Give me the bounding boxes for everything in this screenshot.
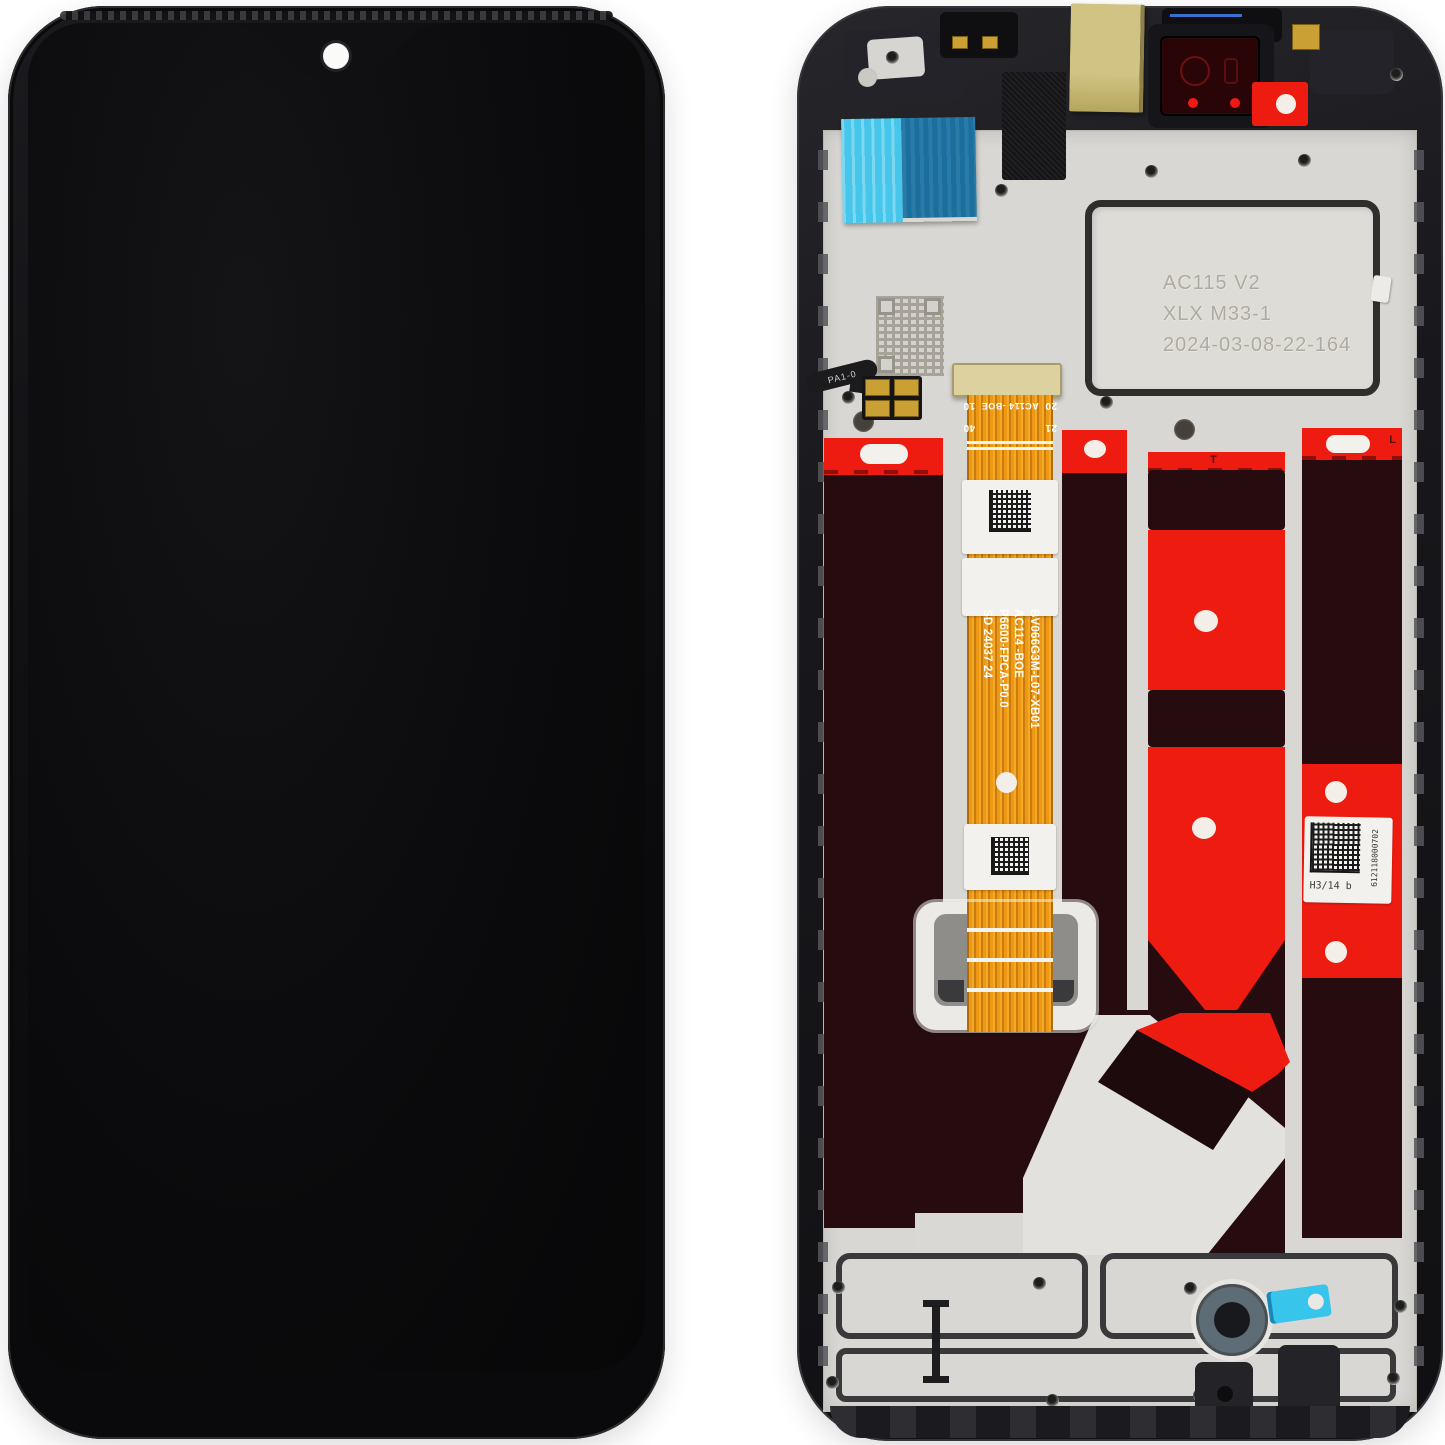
strip3-mark: T (1210, 454, 1217, 466)
red-adhesive-tab (1252, 82, 1308, 126)
flex-label-blank (962, 558, 1058, 616)
screw-hole (832, 1281, 845, 1294)
strip4-slot (1326, 435, 1370, 453)
serial-label-number: 612118000702 (1370, 829, 1380, 887)
strip3-hole-2 (1192, 817, 1216, 839)
pad-corner (938, 980, 964, 1002)
blue-pull-tape (841, 117, 977, 223)
flex-mark: 10 (963, 401, 975, 412)
top-left-connector-recess (940, 12, 1018, 58)
screw-hole (1298, 154, 1311, 167)
qr-finder (878, 356, 895, 373)
flex-line-2: AC114 -BOE (1010, 609, 1026, 779)
etched-qr-code (876, 296, 944, 376)
tab-hole (1307, 1293, 1325, 1311)
screw-hole (842, 391, 855, 404)
phone-front-view (8, 6, 665, 1439)
flex-white-stripe (967, 928, 1053, 932)
etched-line-2: XLX M33-1 (1163, 299, 1351, 330)
strip3-red-mid (1148, 530, 1285, 690)
bottom-gasket-channel-left (836, 1253, 1088, 1339)
gold-pad (894, 379, 919, 396)
blue-tape-dark-part (901, 117, 977, 218)
serial-label: H3/14 b 612118000702 (1303, 816, 1392, 904)
red-dot (1230, 98, 1240, 108)
strip3-black-block-2 (1148, 690, 1285, 747)
strip2-hole (1084, 440, 1106, 458)
black-fabric-patch (1002, 72, 1066, 180)
earpiece-mesh-strip (60, 11, 613, 20)
strip3-black-block-1 (1148, 470, 1285, 530)
flex-ribbon-through-pad (967, 902, 1053, 1032)
gold-pad (865, 379, 890, 396)
screw-hole (995, 184, 1008, 197)
flex-line-4: SD 24037 24 (979, 609, 995, 779)
datamatrix-code (1310, 822, 1361, 873)
strip1-ticks (824, 470, 943, 474)
flex-label-datamatrix-1 (962, 480, 1058, 554)
screw-hole (1100, 396, 1113, 409)
adhesive-strip4-red-header: L (1302, 428, 1402, 460)
gold-pad (865, 400, 890, 417)
phone-screen-off (28, 23, 645, 1371)
lcd-back-column4-upper (1302, 460, 1402, 764)
red-dot (1188, 98, 1198, 108)
flex-white-stripe (967, 988, 1053, 992)
screw-hole (1390, 68, 1403, 81)
screw-hole (1145, 165, 1158, 178)
gold-pad (894, 400, 919, 417)
flash-outline (1224, 58, 1238, 84)
connector-blue-line (1170, 14, 1242, 17)
lcd-back-column4-lower (1302, 978, 1402, 1238)
qr-finder (924, 298, 941, 315)
screw-hole (886, 51, 899, 64)
flex-connector (952, 363, 1062, 397)
flex-top-marks-row2: 21 40 (963, 420, 1057, 436)
screw-hole (1184, 1282, 1197, 1295)
flex-mark: 20 (1045, 401, 1057, 412)
datamatrix-code (989, 490, 1031, 532)
module-hole (1217, 1386, 1233, 1402)
flex-white-line (967, 441, 1053, 444)
frame-molding (1310, 30, 1394, 94)
white-tab (1370, 275, 1391, 303)
flex-hole-dot (996, 772, 1017, 793)
adhesive-strip3-red-header: T (1148, 452, 1285, 472)
screw-hole (1033, 1277, 1046, 1290)
strip3-hole-1 (1194, 610, 1218, 632)
mic-hole (1174, 419, 1195, 440)
strip4-mark: L (1389, 434, 1396, 446)
i-mark-stem (932, 1300, 940, 1382)
strip3-red-lower (1148, 747, 1285, 872)
i-mark-bottom (923, 1376, 949, 1383)
flex-line-1: BV066G3M-L07-XB01 (1026, 609, 1042, 779)
adhesive-strip1-red-header (824, 438, 943, 475)
product-photo-lcd-assembly: AC115 V2 XLX M33-1 2024-03-08-22-164 PA1… (0, 0, 1445, 1445)
gold-connector-block (1292, 24, 1320, 50)
gold-contact (982, 36, 998, 49)
screw-hole (1387, 1372, 1400, 1385)
strip4-hole-1 (1325, 781, 1347, 803)
yellow-kapton-tape (1069, 3, 1145, 112)
flex-top-marks-row1: 20 AC114 -BOE 10 (963, 398, 1057, 414)
flex-line-3: P6600-FPCA-P0.0 (995, 609, 1011, 779)
flex-part-numbers: BV066G3M-L07-XB01 AC114 -BOE P6600-FPCA-… (979, 609, 1041, 779)
qr-finder (878, 298, 895, 315)
flex-mark: 40 (963, 423, 975, 434)
waterdrop-notch (221, 23, 451, 95)
gold-contact-block (862, 376, 922, 420)
adhesive-strip2-red-header (1062, 430, 1127, 473)
strip1-slot (860, 444, 908, 464)
screw-hole (826, 1376, 839, 1389)
etched-model-text: AC115 V2 XLX M33-1 2024-03-08-22-164 (1163, 268, 1351, 361)
etched-line-3: 2024-03-08-22-164 (1163, 330, 1351, 361)
gold-contact (952, 36, 968, 49)
camera-lens-ring (1180, 56, 1210, 86)
bottom-frame-band (830, 1406, 1410, 1438)
front-camera-dot (323, 43, 349, 69)
flex-mark: 21 (1045, 423, 1057, 434)
blue-tape-cyan-part (841, 118, 903, 223)
frame-castellation-right (1414, 150, 1424, 1390)
tab-hole (1276, 94, 1296, 114)
front-camera-hole (1214, 1302, 1250, 1338)
camera-window-glass (1160, 36, 1260, 116)
flex-mark: AC114 -BOE (981, 401, 1039, 411)
screw-hole (1394, 1300, 1407, 1313)
serial-label-code: H3/14 b (1309, 880, 1351, 892)
flex-white-line (967, 447, 1053, 450)
etched-line-1: AC115 V2 (1163, 268, 1351, 299)
flex-white-stripe (967, 958, 1053, 962)
silver-disc-sticker (858, 68, 877, 87)
strip4-hole-2 (1325, 941, 1347, 963)
